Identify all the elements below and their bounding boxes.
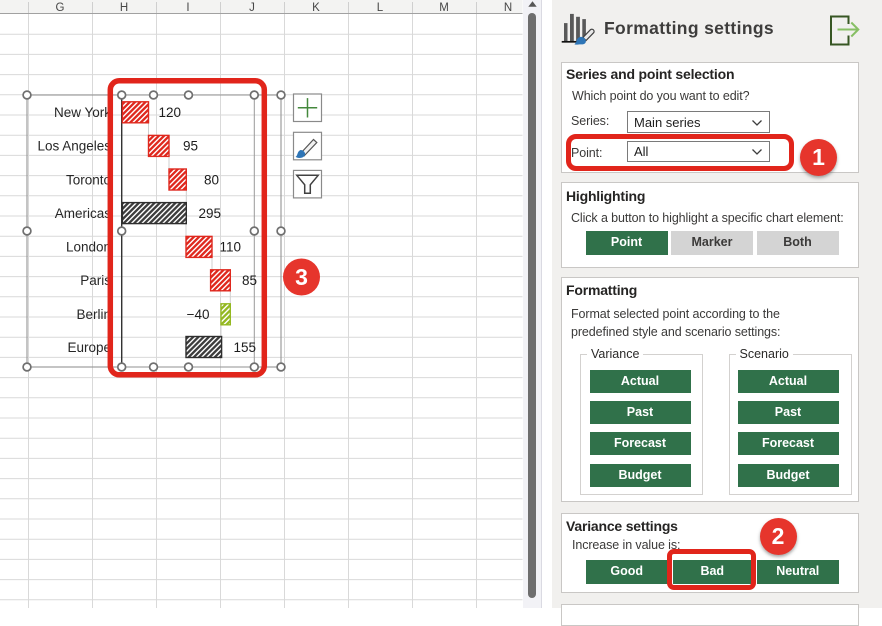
svg-text:155: 155	[234, 340, 257, 355]
svg-text:I: I	[186, 2, 189, 14]
svg-text:85: 85	[242, 273, 257, 288]
svg-text:G: G	[56, 2, 65, 14]
svg-text:120: 120	[159, 105, 182, 120]
svg-text:Berlin: Berlin	[76, 307, 111, 322]
svg-text:L: L	[377, 2, 384, 14]
svg-text:Toronto: Toronto	[66, 172, 111, 187]
svg-text:295: 295	[199, 206, 222, 221]
svg-text:3: 3	[295, 264, 308, 290]
svg-text:Europe: Europe	[67, 340, 111, 355]
svg-text:N: N	[504, 2, 512, 14]
svg-text:−40: −40	[187, 307, 210, 322]
svg-text:Los Angeles: Los Angeles	[37, 139, 111, 154]
svg-text:H: H	[120, 2, 128, 14]
svg-text:95: 95	[183, 139, 198, 154]
svg-text:New York: New York	[54, 105, 111, 120]
svg-text:London: London	[66, 240, 111, 255]
svg-text:110: 110	[220, 240, 242, 255]
svg-text:Paris: Paris	[80, 273, 111, 288]
svg-text:K: K	[312, 2, 320, 14]
svg-text:J: J	[249, 2, 255, 14]
svg-text:Americas: Americas	[55, 206, 112, 221]
svg-text:80: 80	[204, 172, 219, 187]
svg-text:M: M	[439, 2, 449, 14]
